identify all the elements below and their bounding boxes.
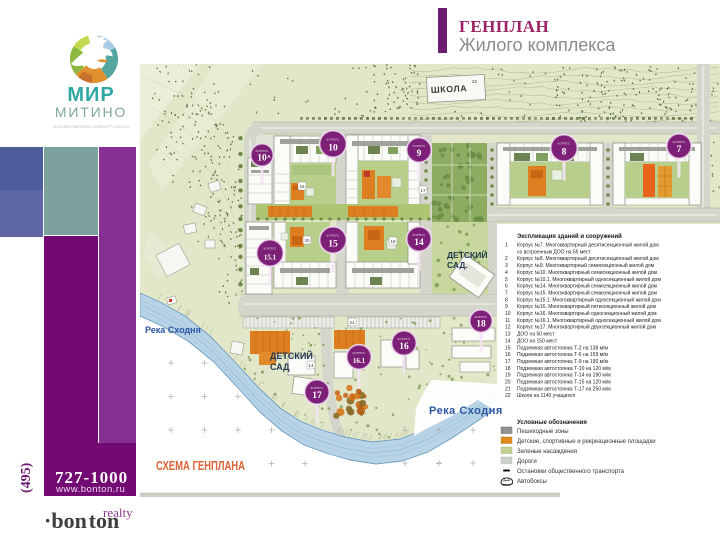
svg-text:12: 12: [505, 325, 511, 331]
svg-text:САД.: САД.: [447, 260, 468, 270]
svg-text:Корпус №16.1. Многоквартирный: Корпус №16.1. Многоквартирный односекцио…: [517, 317, 661, 324]
svg-text:Подземная автостоянка Т-15 на: Подземная автостоянка Т-15 на 120 м/м: [517, 380, 611, 386]
svg-text:18: 18: [476, 319, 486, 329]
svg-text:1: 1: [505, 243, 508, 249]
svg-text:Школа на 1140 учащихся: Школа на 1140 учащихся: [517, 393, 575, 399]
svg-text:Подземная автостоянка Т-17 на: Подземная автостоянка Т-17 на 250 м/м: [517, 386, 611, 392]
svg-text:КОРПУС: КОРПУС: [327, 138, 340, 142]
svg-text:17: 17: [505, 359, 511, 365]
svg-text:20: 20: [505, 380, 511, 386]
svg-text:Подземная автостоянка Т-2 на 1: Подземная автостоянка Т-2 на 138 м/м: [517, 345, 608, 351]
svg-text:20: 20: [304, 238, 310, 243]
svg-text:19: 19: [505, 373, 511, 379]
svg-text:КОРПУС: КОРПУС: [558, 142, 571, 146]
svg-text:ДЕТСКИЙ: ДЕТСКИЙ: [270, 350, 313, 361]
svg-text:7: 7: [505, 290, 508, 296]
svg-text:10: 10: [505, 311, 511, 317]
svg-text:8: 8: [505, 297, 508, 303]
svg-text:ДОО на 150 мест: ДОО на 150 мест: [517, 338, 558, 344]
svg-text:10: 10: [257, 153, 267, 163]
svg-text:Дороги: Дороги: [517, 459, 537, 465]
svg-text:21: 21: [505, 386, 511, 392]
svg-text:КОРПУС: КОРПУС: [475, 315, 488, 319]
svg-text:9: 9: [417, 149, 422, 159]
svg-text:Автобоксы: Автобоксы: [517, 479, 547, 485]
svg-text:КОРПУС: КОРПУС: [353, 351, 366, 355]
svg-text:КОРПУС: КОРПУС: [413, 144, 426, 148]
svg-text:22: 22: [505, 393, 511, 399]
svg-text:9: 9: [505, 304, 508, 310]
svg-text:САД: САД: [270, 362, 290, 372]
svg-text:Условные обозначения: Условные обозначения: [517, 419, 587, 426]
svg-text:11: 11: [505, 318, 510, 324]
svg-text:15: 15: [505, 345, 511, 351]
svg-text:Корпус №14. Многоквартирный се: Корпус №14. Многоквартирный семисекционн…: [517, 283, 658, 290]
svg-text:19: 19: [390, 239, 396, 244]
svg-text:Подземная автостоянка Т-14 на: Подземная автостоянка Т-14 на 190 м/м: [517, 373, 611, 379]
svg-text:ДОО на 50 мест: ДОО на 50 мест: [517, 332, 555, 338]
svg-text:Корпус №16. Многоквартирный пя: Корпус №16. Многоквартирный пятисекционн…: [517, 303, 657, 310]
svg-text:КОРПУС: КОРПУС: [264, 247, 277, 251]
svg-text:14: 14: [505, 338, 511, 344]
svg-text:КОРПУС: КОРПУС: [327, 234, 340, 238]
svg-text:7: 7: [677, 145, 682, 155]
svg-text:со встроенным ДОО на 55 мест: со встроенным ДОО на 55 мест: [517, 249, 592, 255]
svg-text:10: 10: [328, 144, 338, 154]
svg-text:6: 6: [505, 284, 508, 290]
svg-text:Подземная автостоянка Т-6 на 1: Подземная автостоянка Т-6 на 159 м/м: [517, 352, 608, 358]
svg-text:Корпус №9. Многоквартирный сем: Корпус №9. Многоквартирный семисекционны…: [517, 262, 655, 269]
svg-text:КОРПУС: КОРПУС: [413, 233, 426, 237]
svg-text:15.1: 15.1: [264, 254, 277, 262]
svg-text:Пешеходные зоны: Пешеходные зоны: [517, 429, 569, 435]
svg-text:Зеленые насаждения: Зеленые насаждения: [517, 449, 577, 455]
svg-text:13: 13: [505, 332, 511, 338]
svg-text:КОРПУС: КОРПУС: [398, 337, 411, 341]
svg-text:КОРПУС: КОРПУС: [256, 149, 269, 153]
svg-text:ШКОЛА: ШКОЛА: [431, 83, 468, 95]
svg-text:Остановки общественного трансп: Остановки общественного транспорта: [517, 469, 625, 475]
svg-text:Корпус №15. Многоквартирный се: Корпус №15. Многоквартирный семисекционн…: [517, 289, 658, 296]
svg-text:СХЕМА ГЕНПЛАНА: СХЕМА ГЕНПЛАНА: [156, 459, 245, 473]
svg-text:Детские, спортивные и рекреаци: Детские, спортивные и рекреационные площ…: [517, 439, 656, 445]
svg-text:17: 17: [312, 391, 322, 401]
svg-text:КОРПУС: КОРПУС: [311, 386, 324, 390]
svg-text:14: 14: [308, 363, 314, 368]
svg-text:Корпус №10.1. Многоквартирный: Корпус №10.1. Многоквартирный односекцио…: [517, 276, 661, 283]
svg-text:Подземная автостоянка Т-9 на 1: Подземная автостоянка Т-9 на 190 м/м: [517, 359, 608, 365]
svg-text:Экспликация зданий и сооружени: Экспликация зданий и сооружений: [517, 233, 622, 240]
svg-text:Корпус №10. Многоквартирный се: Корпус №10. Многоквартирный семисекционн…: [517, 269, 658, 276]
svg-text:Подземная автостоянка Т-10 на: Подземная автостоянка Т-10 на 120 м/м: [517, 366, 611, 372]
svg-text:2: 2: [505, 256, 508, 262]
svg-text:16: 16: [505, 352, 511, 358]
svg-text:16: 16: [299, 184, 305, 189]
svg-text:Река Сходня: Река Сходня: [145, 325, 201, 335]
svg-text:Корпус №17. Многоквартирный дв: Корпус №17. Многоквартирный двухсекционн…: [517, 324, 656, 331]
svg-text:21: 21: [349, 320, 355, 325]
svg-text:КОРПУС: КОРПУС: [673, 140, 686, 144]
svg-text:Корпус №7. Многоквартирный дес: Корпус №7. Многоквартирный десятисекцион…: [517, 242, 659, 249]
svg-text:18: 18: [505, 366, 511, 372]
svg-text:5: 5: [505, 277, 508, 283]
svg-text:3: 3: [505, 263, 508, 269]
svg-text:Корпус №15.1. Многоквартирный: Корпус №15.1. Многоквартирный односекцио…: [517, 296, 661, 303]
svg-text:Корпус №16. Многоквартирный од: Корпус №16. Многоквартирный односекционн…: [517, 310, 657, 317]
svg-text:16: 16: [399, 342, 409, 352]
svg-text:15: 15: [328, 240, 338, 250]
svg-text:Река Сходня: Река Сходня: [429, 405, 503, 417]
svg-text:22: 22: [472, 79, 478, 84]
svg-text:8: 8: [562, 148, 567, 158]
svg-text:ДЕТСКИЙ: ДЕТСКИЙ: [447, 249, 487, 260]
svg-text:16.1: 16.1: [353, 357, 366, 365]
svg-text:4: 4: [505, 270, 508, 276]
svg-text:Корпус №8. Многоквартирный дес: Корпус №8. Многоквартирный десятисекцион…: [517, 255, 659, 262]
svg-text:17: 17: [420, 188, 426, 193]
svg-text:14: 14: [414, 238, 424, 248]
